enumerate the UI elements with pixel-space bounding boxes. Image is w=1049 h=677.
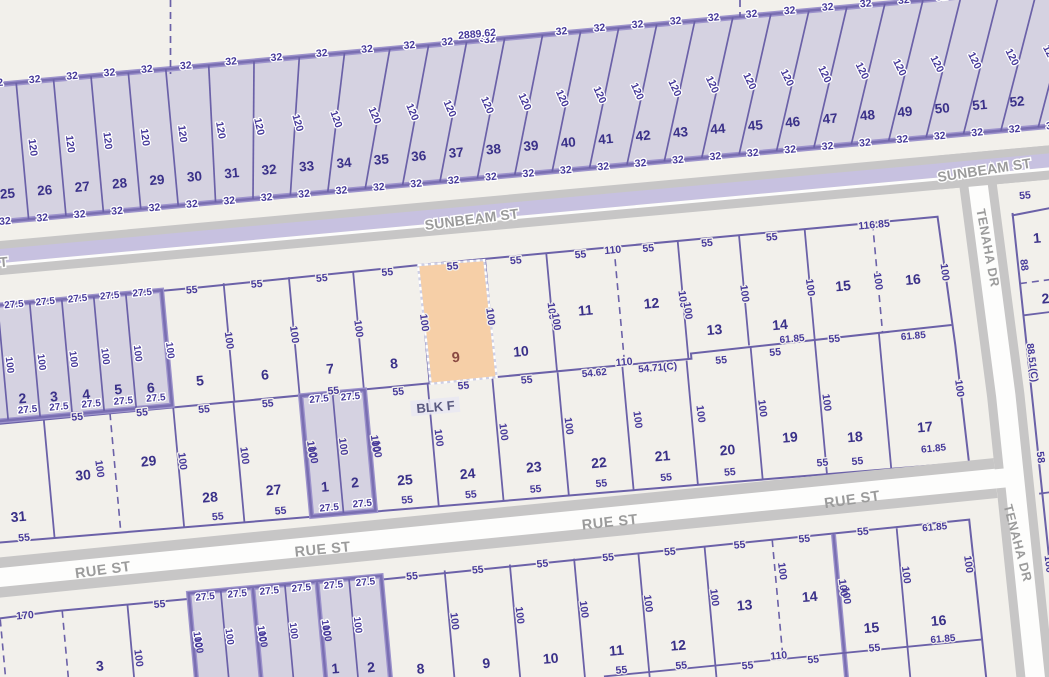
svg-text:100: 100	[737, 284, 751, 303]
svg-text:100: 100	[561, 417, 575, 436]
svg-text:55: 55	[446, 260, 459, 273]
svg-text:100: 100	[577, 600, 591, 619]
svg-text:32: 32	[36, 212, 49, 225]
svg-text:32: 32	[186, 198, 199, 211]
svg-text:19: 19	[781, 428, 798, 445]
svg-text:26: 26	[37, 182, 54, 198]
svg-text:32: 32	[410, 177, 423, 190]
svg-text:45: 45	[747, 117, 764, 133]
svg-text:13: 13	[706, 321, 723, 338]
svg-text:25: 25	[0, 185, 16, 201]
svg-text:12: 12	[643, 294, 660, 311]
svg-text:2: 2	[1041, 290, 1049, 307]
svg-text:100: 100	[496, 423, 510, 442]
svg-text:11: 11	[608, 642, 624, 659]
svg-text:55: 55	[261, 397, 274, 410]
svg-text:55: 55	[465, 488, 478, 501]
svg-text:32: 32	[403, 39, 416, 52]
svg-text:55: 55	[741, 659, 754, 672]
svg-text:55: 55	[18, 532, 31, 545]
svg-text:32: 32	[555, 25, 568, 38]
svg-text:32: 32	[148, 201, 161, 214]
svg-text:100: 100	[306, 445, 320, 464]
svg-text:100: 100	[131, 649, 145, 668]
svg-text:100: 100	[287, 325, 301, 344]
svg-text:100: 100	[35, 353, 48, 371]
svg-text:55: 55	[724, 466, 737, 479]
svg-text:32: 32	[631, 18, 644, 31]
svg-text:29: 29	[140, 452, 157, 469]
svg-text:32: 32	[896, 133, 909, 146]
svg-text:32: 32	[223, 194, 236, 207]
svg-text:32: 32	[441, 36, 454, 49]
svg-text:41: 41	[598, 131, 615, 147]
svg-text:100: 100	[803, 278, 817, 297]
svg-text:16: 16	[904, 271, 921, 288]
svg-text:100: 100	[192, 636, 205, 654]
svg-text:36: 36	[411, 148, 428, 164]
svg-text:12: 12	[670, 636, 687, 653]
svg-text:32: 32	[859, 0, 872, 10]
svg-text:55: 55	[602, 551, 615, 564]
svg-text:27.5: 27.5	[81, 398, 102, 411]
svg-text:27.5: 27.5	[323, 579, 344, 592]
svg-text:35: 35	[373, 151, 390, 167]
svg-text:55: 55	[381, 266, 394, 279]
svg-text:100: 100	[819, 393, 833, 412]
svg-text:28: 28	[202, 488, 219, 505]
svg-text:120: 120	[63, 135, 77, 154]
svg-text:100: 100	[938, 263, 952, 282]
svg-text:37: 37	[448, 145, 464, 161]
svg-text:32: 32	[559, 164, 572, 177]
svg-text:55: 55	[529, 483, 542, 496]
svg-text:27.5: 27.5	[195, 591, 216, 604]
svg-text:51: 51	[972, 97, 989, 113]
svg-text:100: 100	[370, 440, 384, 459]
svg-text:27.5: 27.5	[227, 588, 248, 601]
svg-text:27.5: 27.5	[319, 502, 340, 515]
svg-text:18: 18	[847, 428, 864, 445]
svg-text:30: 30	[75, 466, 92, 483]
svg-text:32: 32	[361, 43, 374, 56]
svg-text:27.5: 27.5	[35, 296, 56, 309]
svg-text:27.5: 27.5	[113, 395, 134, 408]
svg-text:10: 10	[542, 650, 559, 667]
svg-text:120: 120	[100, 131, 114, 150]
svg-text:55: 55	[765, 231, 778, 244]
svg-text:32: 32	[971, 126, 984, 139]
svg-text:30: 30	[186, 168, 202, 184]
svg-text:55: 55	[401, 494, 414, 507]
svg-text:100: 100	[432, 428, 446, 447]
svg-text:55: 55	[701, 237, 714, 250]
svg-text:32: 32	[141, 63, 154, 76]
svg-text:55: 55	[715, 354, 728, 367]
svg-text:55: 55	[675, 659, 688, 672]
svg-text:29: 29	[149, 172, 165, 188]
svg-text:100: 100	[163, 341, 176, 359]
svg-text:27.5: 27.5	[259, 585, 280, 598]
svg-text:32: 32	[859, 137, 872, 150]
svg-text:61.85: 61.85	[922, 521, 948, 534]
svg-text:32: 32	[745, 8, 758, 21]
svg-text:32: 32	[783, 4, 796, 17]
svg-text:27: 27	[74, 179, 90, 195]
svg-text:32: 32	[111, 205, 124, 218]
svg-text:110: 110	[604, 244, 622, 258]
svg-text:27.5: 27.5	[17, 404, 38, 417]
svg-text:55: 55	[733, 539, 746, 552]
svg-text:32: 32	[73, 208, 86, 221]
svg-text:55: 55	[136, 406, 149, 419]
svg-text:38: 38	[485, 141, 502, 157]
svg-text:32: 32	[373, 181, 386, 194]
svg-text:61.85: 61.85	[900, 330, 926, 343]
svg-text:55: 55	[828, 333, 841, 346]
svg-text:9: 9	[451, 350, 460, 367]
svg-text:120: 120	[26, 138, 40, 157]
svg-text:100: 100	[256, 630, 269, 648]
svg-text:32: 32	[28, 73, 41, 86]
svg-text:100: 100	[92, 459, 106, 478]
svg-text:100: 100	[775, 562, 789, 581]
svg-text:55: 55	[642, 242, 655, 255]
svg-text:100: 100	[839, 586, 853, 605]
svg-text:32: 32	[821, 140, 834, 153]
svg-text:49: 49	[897, 104, 913, 120]
svg-text:32: 32	[335, 184, 348, 197]
svg-text:55: 55	[71, 411, 84, 424]
svg-text:55: 55	[250, 278, 263, 291]
svg-text:46: 46	[784, 114, 801, 130]
svg-text:32: 32	[1046, 119, 1049, 132]
svg-text:32: 32	[270, 51, 283, 64]
svg-text:15: 15	[835, 277, 852, 294]
svg-text:16: 16	[930, 612, 947, 629]
svg-text:14: 14	[772, 316, 789, 333]
svg-text:55: 55	[769, 346, 782, 359]
svg-text:22: 22	[590, 454, 607, 471]
svg-text:24: 24	[459, 465, 476, 482]
svg-text:55: 55	[798, 533, 811, 546]
svg-text:27.5: 27.5	[340, 391, 361, 404]
svg-text:27.5: 27.5	[146, 392, 167, 405]
svg-text:55: 55	[327, 385, 340, 398]
svg-text:55: 55	[520, 374, 533, 387]
svg-text:32: 32	[522, 167, 535, 180]
svg-text:32: 32	[315, 47, 328, 60]
svg-text:32: 32	[66, 70, 79, 83]
svg-text:27: 27	[265, 481, 282, 498]
svg-text:55: 55	[392, 385, 405, 398]
svg-text:58: 58	[1034, 451, 1047, 464]
svg-text:32: 32	[746, 147, 759, 160]
svg-text:32: 32	[784, 143, 797, 156]
svg-text:55: 55	[185, 284, 198, 297]
svg-text:32: 32	[447, 174, 460, 187]
svg-text:20: 20	[719, 441, 736, 458]
svg-text:17: 17	[916, 418, 933, 435]
svg-text:100: 100	[175, 452, 189, 471]
svg-text:27.5: 27.5	[67, 293, 88, 306]
svg-text:32: 32	[260, 191, 273, 204]
svg-text:48: 48	[859, 107, 876, 123]
svg-text:27.5: 27.5	[309, 393, 330, 406]
svg-text:100: 100	[287, 622, 300, 640]
svg-text:15: 15	[863, 619, 880, 636]
svg-text:100: 100	[447, 612, 461, 631]
svg-text:55: 55	[406, 570, 419, 583]
svg-text:32: 32	[179, 59, 192, 72]
svg-text:32: 32	[1008, 123, 1021, 136]
svg-text:55: 55	[615, 664, 628, 677]
svg-text:32: 32	[634, 157, 647, 170]
svg-text:32: 32	[103, 66, 116, 79]
svg-text:100: 100	[98, 347, 111, 365]
svg-text:21: 21	[654, 447, 671, 464]
svg-text:32: 32	[897, 0, 910, 7]
svg-text:120: 120	[138, 128, 152, 147]
svg-text:27.5: 27.5	[49, 401, 70, 414]
svg-text:55: 55	[457, 379, 470, 392]
svg-text:100: 100	[3, 356, 16, 374]
svg-text:100: 100	[952, 379, 966, 398]
svg-text:40: 40	[560, 134, 576, 150]
svg-text:55: 55	[274, 505, 287, 518]
svg-text:100: 100	[549, 312, 563, 331]
svg-text:28: 28	[111, 175, 128, 191]
svg-text:32: 32	[485, 171, 498, 184]
svg-text:55: 55	[664, 545, 677, 558]
svg-text:55: 55	[509, 254, 522, 267]
svg-text:55: 55	[595, 477, 608, 490]
svg-text:55: 55	[536, 558, 549, 571]
svg-text:100: 100	[512, 606, 526, 625]
svg-text:13: 13	[736, 596, 753, 613]
svg-text:39: 39	[523, 138, 539, 154]
svg-text:100: 100	[222, 628, 235, 646]
svg-text:55: 55	[868, 642, 881, 655]
svg-text:88: 88	[1017, 258, 1030, 271]
svg-text:25: 25	[396, 471, 413, 488]
svg-text:47: 47	[822, 110, 838, 126]
svg-text:55: 55	[660, 471, 673, 484]
svg-text:100: 100	[320, 624, 333, 642]
svg-text:100: 100	[336, 437, 350, 456]
svg-text:42: 42	[635, 128, 651, 144]
svg-text:44: 44	[710, 121, 727, 137]
svg-text:32: 32	[709, 150, 722, 163]
svg-text:100: 100	[222, 331, 236, 350]
svg-text:32: 32	[597, 160, 610, 173]
svg-text:100: 100	[961, 555, 975, 574]
svg-text:31: 31	[10, 508, 27, 525]
svg-text:31: 31	[224, 165, 241, 181]
svg-text:100: 100	[417, 313, 431, 332]
svg-text:100: 100	[641, 594, 655, 613]
svg-text:61.85: 61.85	[930, 633, 956, 646]
svg-text:32: 32	[225, 55, 238, 68]
svg-text:61.85: 61.85	[779, 333, 805, 346]
svg-text:32: 32	[593, 22, 606, 35]
svg-text:100: 100	[237, 446, 251, 465]
svg-text:32: 32	[707, 11, 720, 24]
svg-text:32: 32	[821, 1, 834, 14]
svg-text:100: 100	[899, 566, 913, 585]
svg-text:100: 100	[630, 410, 644, 429]
svg-text:55: 55	[856, 525, 869, 538]
svg-text:61.85: 61.85	[921, 442, 947, 455]
svg-text:27.5: 27.5	[132, 287, 153, 300]
svg-text:55: 55	[807, 653, 820, 666]
svg-text:110: 110	[615, 356, 633, 370]
svg-text:110: 110	[770, 649, 788, 663]
svg-text:55: 55	[574, 248, 587, 261]
svg-text:100: 100	[66, 350, 79, 368]
svg-text:100: 100	[871, 272, 885, 291]
svg-text:32: 32	[669, 15, 682, 28]
svg-text:100: 100	[755, 399, 769, 418]
svg-text:100: 100	[131, 344, 144, 362]
svg-text:170: 170	[16, 609, 35, 623]
svg-text:55: 55	[471, 564, 484, 577]
svg-text:100: 100	[707, 588, 721, 607]
svg-text:100: 100	[693, 405, 707, 424]
svg-text:11: 11	[577, 301, 593, 318]
svg-text:52: 52	[1009, 93, 1025, 109]
svg-text:55: 55	[198, 403, 211, 416]
svg-text:50: 50	[934, 100, 950, 116]
svg-text:34: 34	[336, 155, 353, 171]
svg-text:55: 55	[153, 598, 166, 611]
svg-text:10: 10	[512, 342, 529, 359]
svg-text:32: 32	[298, 188, 311, 201]
svg-text:55: 55	[1019, 189, 1032, 202]
svg-text:55: 55	[315, 272, 328, 285]
svg-text:33: 33	[298, 158, 315, 174]
svg-text:54.62: 54.62	[581, 367, 607, 380]
svg-text:27.5: 27.5	[355, 576, 376, 589]
svg-text:14: 14	[801, 588, 818, 605]
svg-text:27.5: 27.5	[4, 299, 25, 312]
svg-text:27.5: 27.5	[352, 498, 373, 511]
svg-text:100: 100	[483, 307, 497, 326]
svg-text:27.5: 27.5	[100, 290, 121, 303]
svg-text:23: 23	[525, 458, 542, 475]
svg-text:32: 32	[0, 215, 11, 228]
svg-text:120: 120	[175, 124, 189, 143]
svg-text:32: 32	[672, 154, 685, 167]
svg-text:43: 43	[672, 124, 689, 140]
svg-text:27.5: 27.5	[291, 582, 312, 595]
svg-text:55: 55	[851, 455, 864, 468]
svg-text:100: 100	[681, 301, 695, 320]
svg-text:100: 100	[351, 319, 365, 338]
svg-text:100: 100	[351, 616, 364, 634]
svg-text:32: 32	[261, 162, 277, 178]
svg-text:32: 32	[933, 130, 946, 143]
svg-text:55: 55	[211, 510, 224, 523]
svg-text:55: 55	[816, 457, 829, 470]
